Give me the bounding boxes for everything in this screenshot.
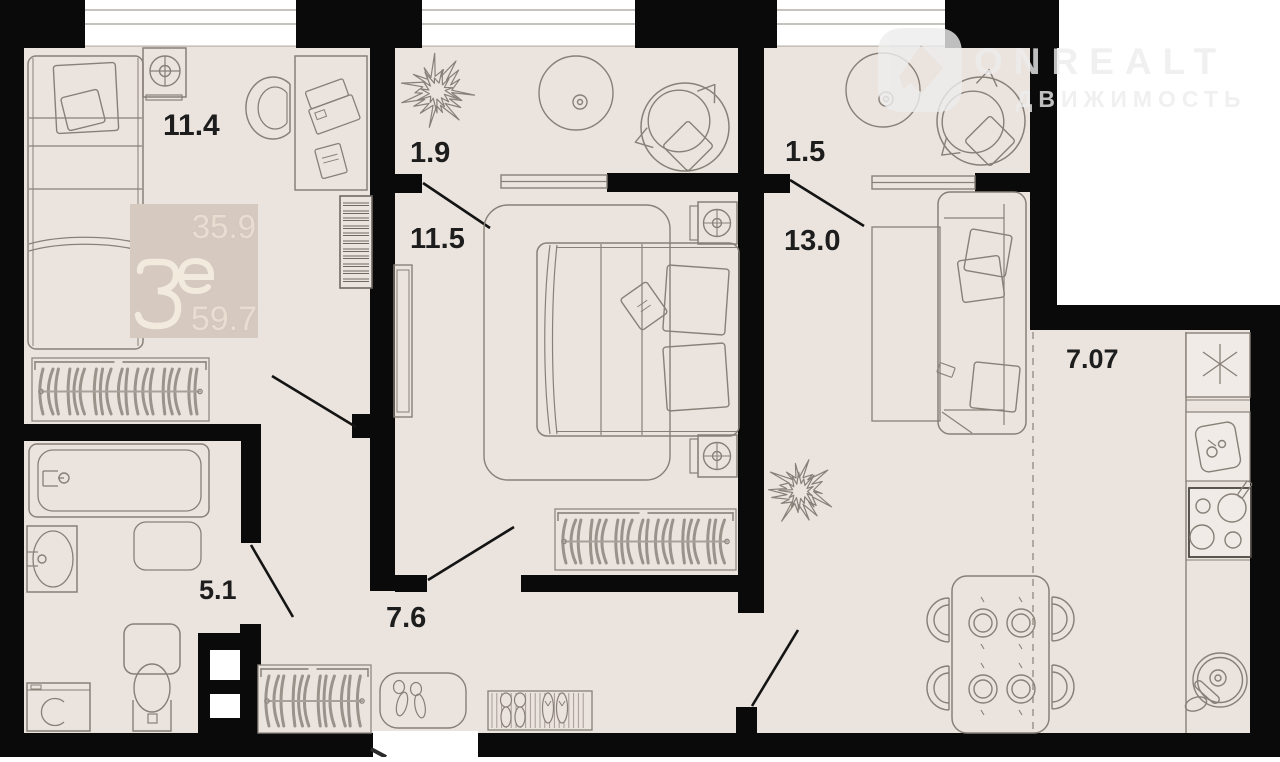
svg-text:7.6: 7.6: [386, 602, 426, 634]
svg-text:5.1: 5.1: [199, 575, 237, 605]
svg-text:13.0: 13.0: [784, 225, 840, 257]
svg-text:ONREALT: ONREALT: [974, 41, 1227, 82]
svg-text:11.4: 11.4: [163, 109, 220, 142]
svg-text:7.07: 7.07: [1066, 344, 1119, 374]
svg-text:1.9: 1.9: [410, 137, 450, 169]
svg-text:59.7: 59.7: [191, 300, 257, 338]
svg-text:11.5: 11.5: [410, 223, 465, 255]
svg-text:35.9: 35.9: [192, 208, 256, 245]
svg-text:ДВИЖИМОСТЬ: ДВИЖИМОСТЬ: [1016, 86, 1247, 112]
svg-text:1.5: 1.5: [785, 136, 825, 168]
